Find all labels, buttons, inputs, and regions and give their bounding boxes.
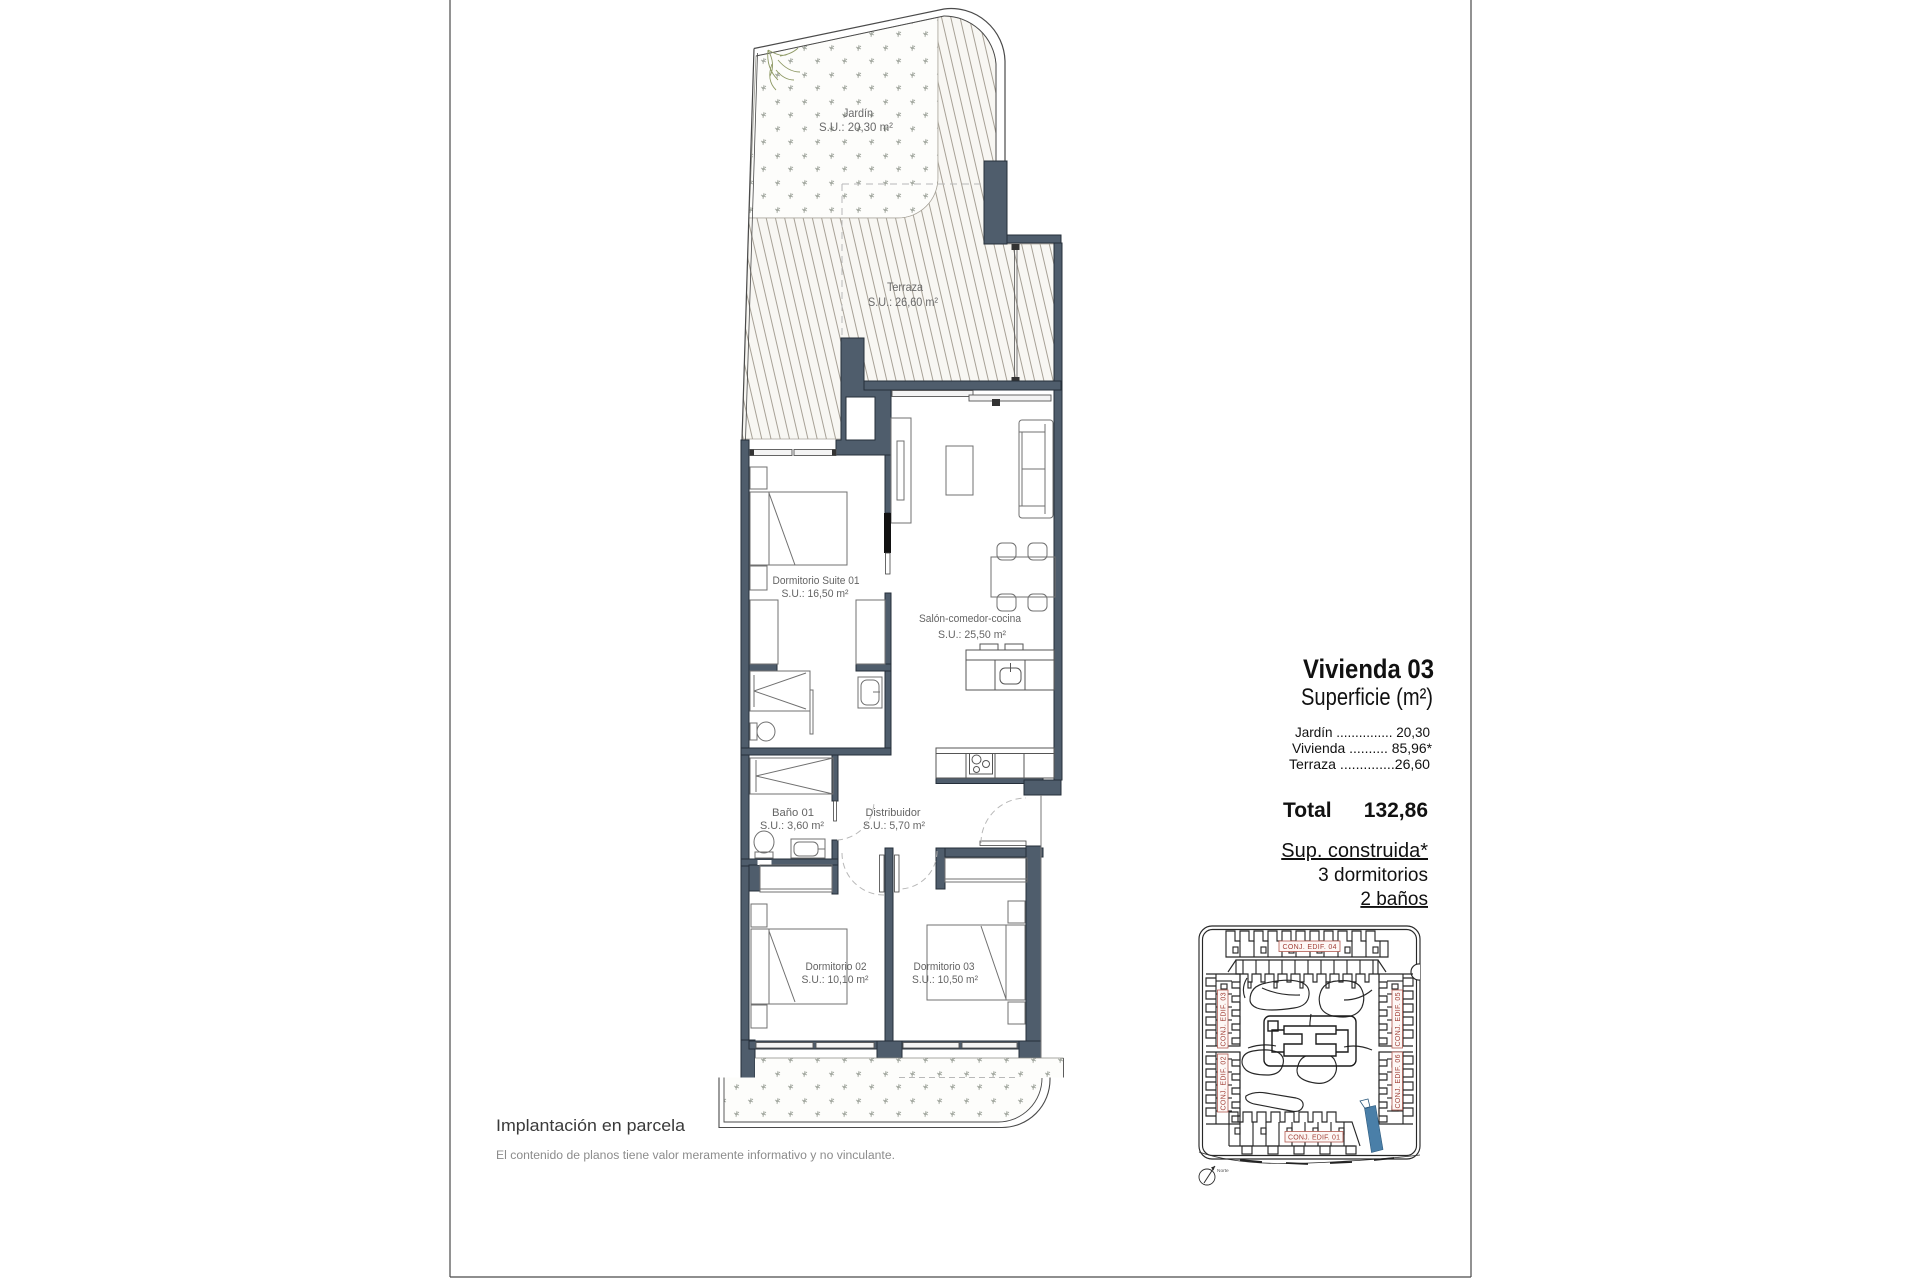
- svg-text:Dormitorio 02: Dormitorio 02: [806, 961, 867, 973]
- svg-text:Baño 01: Baño 01: [772, 807, 814, 819]
- svg-text:S.U.: 16,50 m²: S.U.: 16,50 m²: [782, 588, 849, 600]
- svg-text:Sup. construida*: Sup. construida*: [1281, 840, 1428, 862]
- svg-text:3 dormitorios: 3 dormitorios: [1318, 865, 1428, 886]
- svg-text:Terraza ..............26,60: Terraza ..............26,60: [1289, 756, 1430, 772]
- svg-text:Vivienda 03: Vivienda 03: [1303, 654, 1434, 684]
- svg-text:Dormitorio Suite 01: Dormitorio Suite 01: [773, 575, 860, 587]
- svg-text:CONJ. EDIF. 06: CONJ. EDIF. 06: [1395, 1054, 1402, 1108]
- svg-text:Dormitorio 03: Dormitorio 03: [914, 961, 975, 973]
- svg-text:CONJ. EDIF. 04: CONJ. EDIF. 04: [1283, 944, 1337, 951]
- svg-text:CONJ. EDIF. 05: CONJ. EDIF. 05: [1395, 992, 1402, 1046]
- svg-text:S.U.: 10,10 m²: S.U.: 10,10 m²: [802, 974, 869, 986]
- svg-text:S.U.: 20,30 m²: S.U.: 20,30 m²: [819, 120, 893, 134]
- svg-text:S.U.: 25,50 m²: S.U.: 25,50 m²: [938, 629, 1006, 641]
- svg-text:El contenido de planos tiene v: El contenido de planos tiene valor meram…: [496, 1150, 895, 1162]
- svg-text:Jardín: Jardín: [843, 106, 873, 120]
- svg-text:Distribuidor: Distribuidor: [866, 807, 921, 819]
- svg-text:Implantación en parcela: Implantación en parcela: [496, 1117, 686, 1135]
- svg-text:Norte: Norte: [1217, 1168, 1229, 1174]
- svg-text:Salón-comedor-cocina: Salón-comedor-cocina: [919, 613, 1022, 625]
- svg-text:S.U.: 3,60 m²: S.U.: 3,60 m²: [760, 820, 824, 832]
- svg-text:S.U.: 5,70 m²: S.U.: 5,70 m²: [863, 820, 925, 832]
- svg-text:Superficie (m²): Superficie (m²): [1301, 684, 1433, 711]
- svg-text:CONJ. EDIF. 01: CONJ. EDIF. 01: [1288, 1135, 1340, 1142]
- svg-text:S.U.: 26,60 m²: S.U.: 26,60 m²: [868, 295, 938, 309]
- svg-text:Jardín ............... 20,30: Jardín ............... 20,30: [1295, 724, 1430, 740]
- svg-text:Total: Total: [1283, 799, 1332, 822]
- svg-text:CONJ. EDIF. 02: CONJ. EDIF. 02: [1221, 1056, 1228, 1110]
- svg-text:S.U.: 10,50 m²: S.U.: 10,50 m²: [912, 974, 978, 986]
- svg-text:2 baños: 2 baños: [1360, 889, 1428, 910]
- svg-text:132,86: 132,86: [1364, 799, 1428, 822]
- svg-text:Terraza: Terraza: [887, 280, 923, 294]
- svg-text:Vivienda .......... 85,96*: Vivienda .......... 85,96*: [1292, 740, 1433, 756]
- svg-text:CONJ. EDIF. 03: CONJ. EDIF. 03: [1221, 992, 1228, 1046]
